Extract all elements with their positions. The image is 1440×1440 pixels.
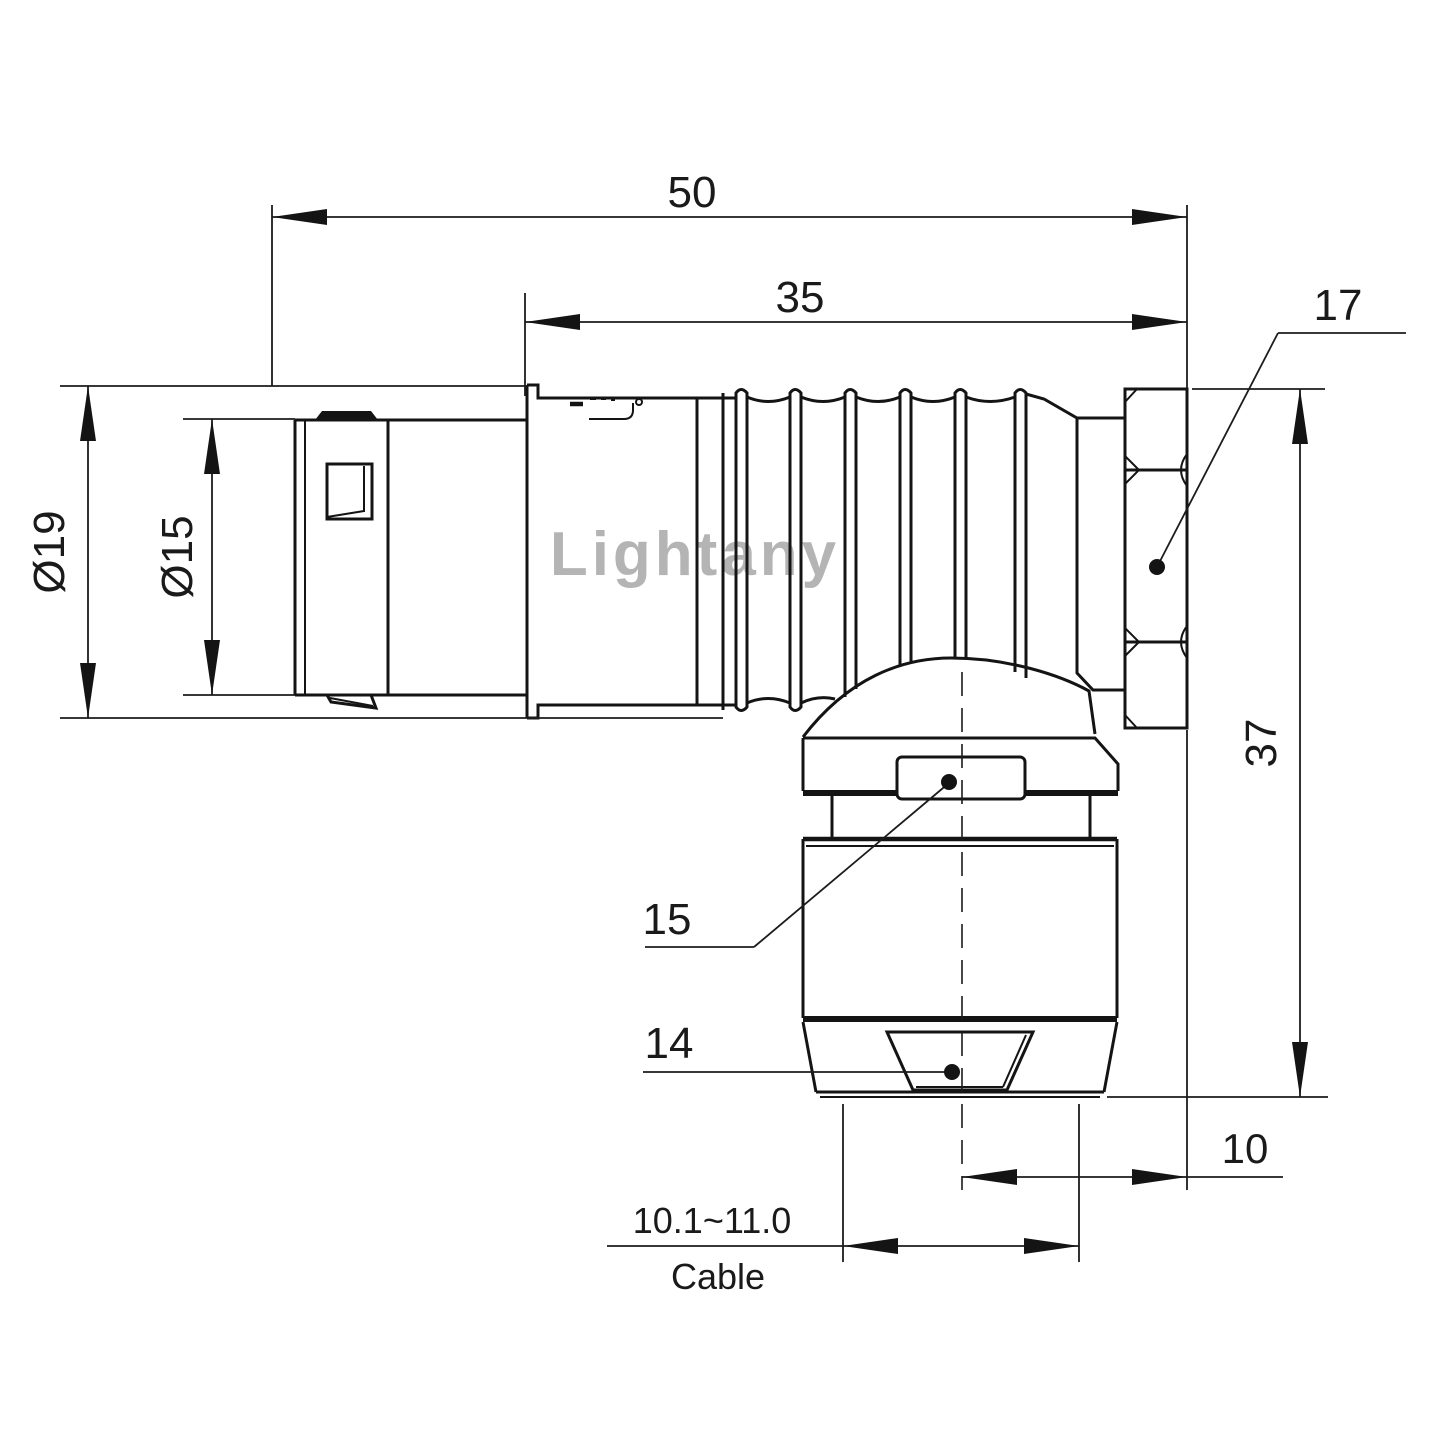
key-window-frame [327, 464, 372, 519]
cable-caption: Cable [671, 1256, 765, 1297]
latch-tab-top [315, 411, 378, 420]
callout-15-point [941, 774, 957, 790]
callout-15-label: 15 [643, 895, 692, 944]
callout-14-point [944, 1064, 960, 1080]
collet-window-frame [887, 1032, 1033, 1090]
logo-dots [590, 399, 615, 400]
cable-range-label: 10.1~11.0 [633, 1200, 791, 1241]
callout-14-label: 14 [645, 1019, 694, 1068]
label-window [897, 757, 1025, 799]
watermark-text: Lightany [550, 520, 840, 589]
drawing-canvas: 50 35 Ø19 Ø15 37 10 [0, 0, 1440, 1440]
dim-dia15-label: Ø15 [153, 515, 202, 598]
callout-17-point [1149, 559, 1165, 575]
dim-50-label: 50 [668, 168, 717, 217]
dim-35-label: 35 [776, 273, 825, 322]
dim-10-label: 10 [1222, 1125, 1269, 1172]
key-window [327, 464, 372, 519]
dim-37-label: 37 [1237, 719, 1286, 768]
callout-17-label: 17 [1314, 281, 1363, 330]
collet-window [887, 1032, 1033, 1090]
technical-drawing-right-angle-connector: 50 35 Ø19 Ø15 37 10 [0, 0, 1440, 1440]
dim-dia19-label: Ø19 [25, 510, 74, 593]
